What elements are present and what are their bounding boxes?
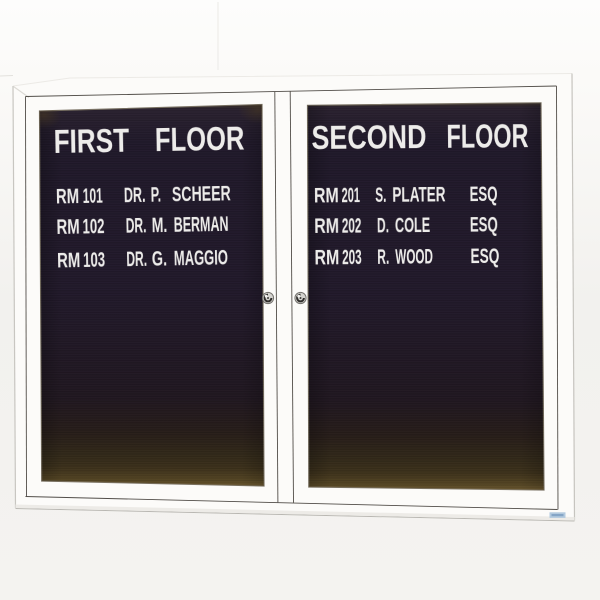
svg-text:FIRST: FIRST: [53, 122, 130, 160]
svg-text:RM: RM: [56, 185, 80, 208]
svg-text:COLE: COLE: [395, 214, 430, 237]
svg-text:DR.: DR.: [125, 214, 146, 237]
svg-text:ESQ: ESQ: [470, 213, 498, 236]
svg-text:G.: G.: [152, 248, 168, 271]
svg-text:MAGGIO: MAGGIO: [174, 246, 228, 270]
svg-text:DR.: DR.: [124, 184, 146, 207]
svg-text:RM: RM: [56, 216, 80, 239]
svg-text:FLOOR: FLOOR: [155, 120, 245, 159]
svg-text:201: 201: [341, 184, 360, 207]
svg-text:101: 101: [83, 185, 104, 208]
svg-text:D.: D.: [377, 214, 389, 237]
svg-text:M.: M.: [151, 214, 167, 237]
svg-text:102: 102: [82, 215, 104, 238]
svg-text:RM: RM: [314, 215, 339, 238]
svg-text:SCHEER: SCHEER: [172, 182, 231, 206]
svg-text:ESQ: ESQ: [469, 183, 497, 206]
svg-text:RM: RM: [314, 246, 339, 269]
svg-text:S.: S.: [375, 184, 386, 207]
svg-text:103: 103: [83, 249, 105, 272]
svg-text:FLOOR: FLOOR: [446, 118, 528, 156]
svg-text:PLATER: PLATER: [392, 183, 445, 206]
svg-text:SECOND: SECOND: [311, 119, 426, 157]
svg-text:203: 203: [342, 246, 362, 269]
svg-text:ESQ: ESQ: [470, 245, 499, 268]
svg-text:RM: RM: [314, 184, 339, 207]
svg-text:DR.: DR.: [126, 248, 147, 271]
svg-text:WOOD: WOOD: [395, 246, 433, 269]
svg-text:RM: RM: [57, 249, 81, 272]
svg-text:P.: P.: [151, 184, 162, 207]
svg-text:202: 202: [342, 215, 362, 238]
svg-text:BERMAN: BERMAN: [173, 213, 228, 237]
svg-text:R.: R.: [377, 246, 389, 269]
